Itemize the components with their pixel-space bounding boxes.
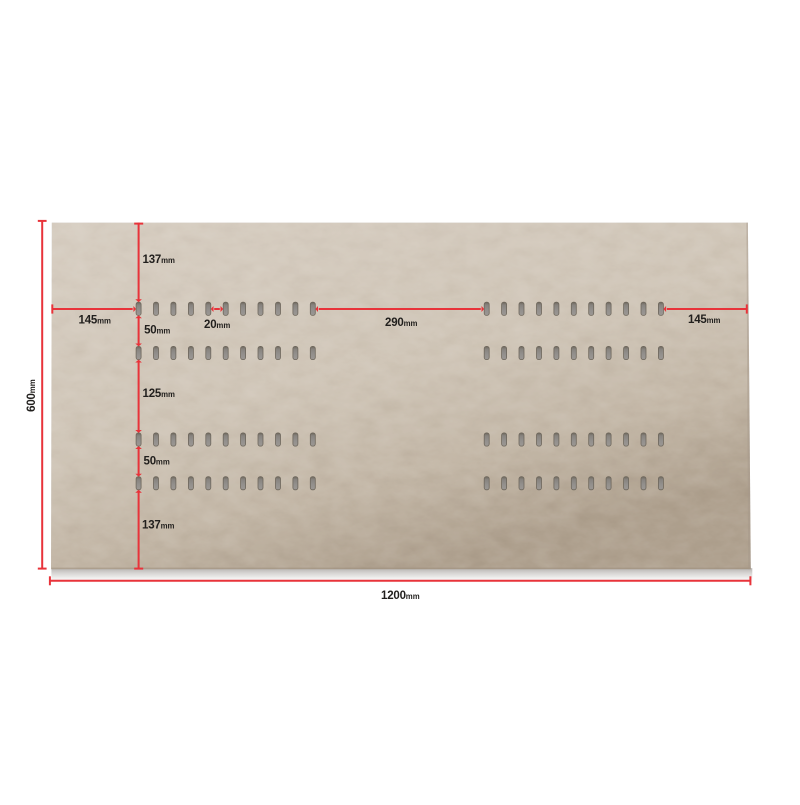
svg-text:125mm: 125mm bbox=[143, 388, 176, 400]
svg-text:20mm: 20mm bbox=[204, 319, 230, 331]
svg-text:290mm: 290mm bbox=[385, 317, 418, 329]
svg-text:50mm: 50mm bbox=[144, 324, 170, 336]
svg-text:137mm: 137mm bbox=[143, 254, 176, 266]
svg-text:1200mm: 1200mm bbox=[381, 590, 420, 602]
svg-text:145mm: 145mm bbox=[688, 314, 721, 326]
svg-text:145mm: 145mm bbox=[79, 314, 112, 326]
svg-text:600mm: 600mm bbox=[26, 379, 38, 412]
svg-text:50mm: 50mm bbox=[144, 455, 170, 467]
svg-text:137mm: 137mm bbox=[142, 520, 175, 532]
